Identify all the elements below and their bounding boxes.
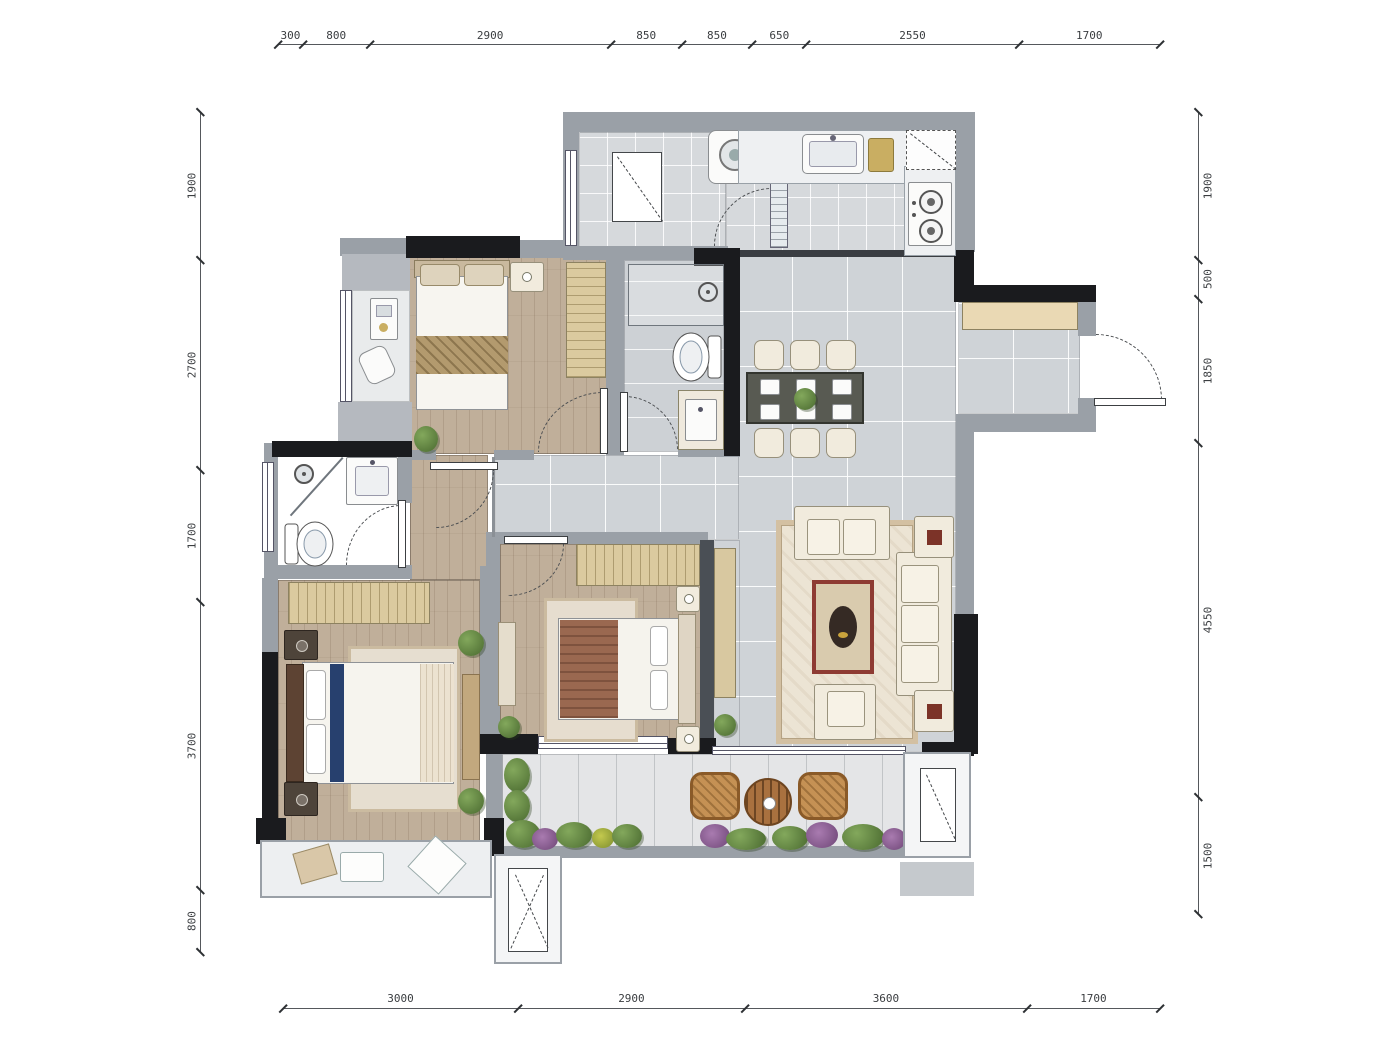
bedroom1-pillow-1 — [420, 264, 460, 286]
shower-head-icon-2 — [698, 282, 718, 302]
wall-bedroom1-top-r — [514, 240, 568, 258]
bedroom2-nightstand-2 — [676, 726, 700, 752]
balcony-plant-column2 — [504, 790, 530, 822]
dimension-ruler-bottom: 3000290036001700 — [283, 992, 1160, 1016]
dimension-label: 3700 — [186, 733, 199, 760]
floor-plan-canvas: 300800290085085065025501700 300029003600… — [0, 0, 1400, 1050]
master-wardrobe — [288, 582, 430, 624]
master-bed-runner — [330, 664, 344, 782]
bedroom1-nightstand — [510, 262, 544, 292]
dimension-label: 300 — [281, 29, 301, 42]
dining-chair-5 — [790, 428, 820, 458]
master-headboard — [286, 664, 304, 782]
bedroom2-pillow-1 — [650, 626, 668, 666]
balcony-plant-column — [504, 758, 530, 792]
balcony-bed-5 — [612, 824, 642, 848]
wall-top — [563, 112, 975, 132]
bedroom1-wardrobe — [566, 262, 606, 378]
coffee-table — [812, 580, 874, 674]
wall-black-living-right — [954, 614, 978, 754]
wall-black-dining-left — [724, 250, 740, 456]
balcony-table — [744, 778, 792, 826]
wall-bedroom2-right — [700, 540, 714, 752]
entry-door-leaf — [1094, 398, 1166, 406]
master-duvet-fold — [420, 664, 454, 782]
bedroom1-pillow-2 — [464, 264, 504, 286]
wall-niche-top — [342, 254, 410, 290]
wall-kitchen-right — [956, 112, 975, 252]
balcony-bed-7 — [726, 828, 766, 850]
dimension-label: 3600 — [873, 992, 900, 1005]
dimension-label: 500 — [1202, 269, 1215, 289]
niche-desk — [370, 298, 398, 340]
dimension-label: 2700 — [186, 352, 199, 379]
tv-console — [714, 548, 736, 698]
toilet-icon-bathroom1 — [282, 518, 336, 570]
balcony-bed-3 — [556, 822, 592, 848]
sliding-door-balcony — [712, 746, 906, 755]
window-laundry — [565, 150, 577, 246]
wall-entry-right — [1078, 300, 1096, 336]
toilet-icon-bathroom2 — [670, 328, 724, 386]
bathroom2-door-leaf — [620, 392, 628, 452]
master-pillow-1 — [306, 670, 326, 720]
dimension-label: 2550 — [899, 29, 926, 42]
dimension-label: 2900 — [477, 29, 504, 42]
dimension-label: 1700 — [1076, 29, 1103, 42]
shaft-symbol-right — [920, 768, 956, 842]
balcony-chair-1 — [690, 772, 740, 820]
loveseat — [794, 506, 890, 560]
floor-plan — [0, 0, 1400, 1050]
balcony-bed-9 — [806, 822, 838, 848]
dimension-label: 1900 — [186, 173, 199, 200]
dining-centerpiece-plant — [794, 388, 816, 410]
dimension-label: 850 — [707, 29, 727, 42]
dimension-label: 4550 — [1202, 607, 1215, 634]
wall-niche-bottom — [338, 402, 412, 442]
bedroom2-nightstand-1 — [676, 586, 700, 612]
dimension-label: 1500 — [1202, 842, 1215, 869]
wall-master-left-top — [262, 578, 278, 654]
dimension-line — [1198, 112, 1199, 914]
balcony-bed-10 — [842, 824, 884, 850]
dimension-line — [200, 112, 201, 952]
master-nightstand-2 — [284, 782, 318, 816]
plant-master-2 — [458, 788, 484, 814]
vanity-bathroom2 — [678, 390, 724, 450]
dimension-label: 3000 — [387, 992, 414, 1005]
dimension-ruler-right: 1900500185045501500 — [1192, 112, 1216, 914]
bedroom2-pillow-2 — [650, 670, 668, 710]
hall-floor — [495, 455, 739, 540]
dimension-label: 1900 — [1202, 173, 1215, 200]
dimension-label: 650 — [769, 29, 789, 42]
dimension-ruler-top: 300800290085085065025501700 — [278, 28, 1160, 52]
dimension-line — [278, 44, 1160, 45]
balcony-bed-8 — [772, 826, 808, 850]
wall-black-master-left — [262, 652, 278, 820]
sink-bathroom1 — [346, 457, 398, 505]
balcony-chair-2 — [798, 772, 848, 820]
plant-master-1 — [458, 630, 484, 656]
dimension-ruler-left: 1900270017003700800 — [184, 112, 208, 952]
bedroom1-door-leaf — [600, 388, 608, 454]
armchair — [814, 684, 876, 740]
dining-chair-3 — [826, 340, 856, 370]
bathroom1-door-arc — [346, 505, 402, 565]
master-nightstand-1 — [284, 630, 318, 660]
window-niche — [340, 290, 352, 402]
kitchen-sink-icon — [802, 134, 864, 174]
wall-master-door-r — [494, 450, 534, 460]
wall-black-entry-top — [954, 285, 1096, 302]
wall-black-bedroom1-top — [406, 236, 520, 258]
bedroom1-blanket — [416, 336, 508, 374]
plant-bedroom1 — [414, 426, 438, 452]
fridge-icon — [906, 130, 956, 170]
dimension-label: 2900 — [618, 992, 645, 1005]
balcony-bed-4 — [592, 828, 614, 848]
side-table-top — [914, 516, 954, 558]
plant-living-corner — [714, 714, 736, 736]
dimension-label: 850 — [636, 29, 656, 42]
wall-living-right — [956, 432, 974, 618]
cutting-board-icon — [868, 138, 894, 172]
dining-chair-2 — [790, 340, 820, 370]
bedroom2-wardrobe — [576, 544, 700, 586]
shaft-symbol-bottom — [508, 868, 548, 952]
master-bench — [462, 674, 480, 780]
wall-black-bathroom1-top — [272, 441, 412, 457]
dining-chair-4 — [754, 428, 784, 458]
bedroom2-blanket — [560, 620, 618, 718]
master-door-leaf — [430, 462, 498, 470]
shoe-cabinet — [962, 302, 1078, 330]
dimension-label: 1700 — [186, 523, 199, 550]
window-bathroom1 — [262, 462, 274, 552]
bedroom2-desk — [498, 622, 516, 706]
cooktop-icon — [908, 182, 952, 246]
side-table-bottom — [914, 690, 954, 732]
bay-pillow-2 — [340, 852, 384, 882]
master-pillow-2 — [306, 724, 326, 774]
dimension-label: 1700 — [1080, 992, 1107, 1005]
dining-chair-1 — [754, 340, 784, 370]
entry-door-arc — [1096, 334, 1162, 400]
dining-chair-6 — [826, 428, 856, 458]
dimension-label: 1850 — [1202, 358, 1215, 385]
bedroom2-door-leaf — [504, 536, 568, 544]
laundry-shaft-symbol — [612, 152, 662, 222]
dimension-label: 800 — [186, 911, 199, 931]
wall-entry-bottom — [956, 414, 1096, 432]
dimension-label: 800 — [326, 29, 346, 42]
bathroom1-door-leaf — [398, 500, 406, 568]
wall-ac-stub — [900, 862, 974, 896]
bedroom2-headboard — [678, 614, 696, 724]
sofa-main — [896, 552, 952, 696]
shaft-diagonal — [617, 156, 663, 221]
shower-head-icon-1 — [294, 464, 314, 484]
balcony-bed-2 — [532, 828, 558, 850]
plant-bedroom2 — [498, 716, 520, 738]
